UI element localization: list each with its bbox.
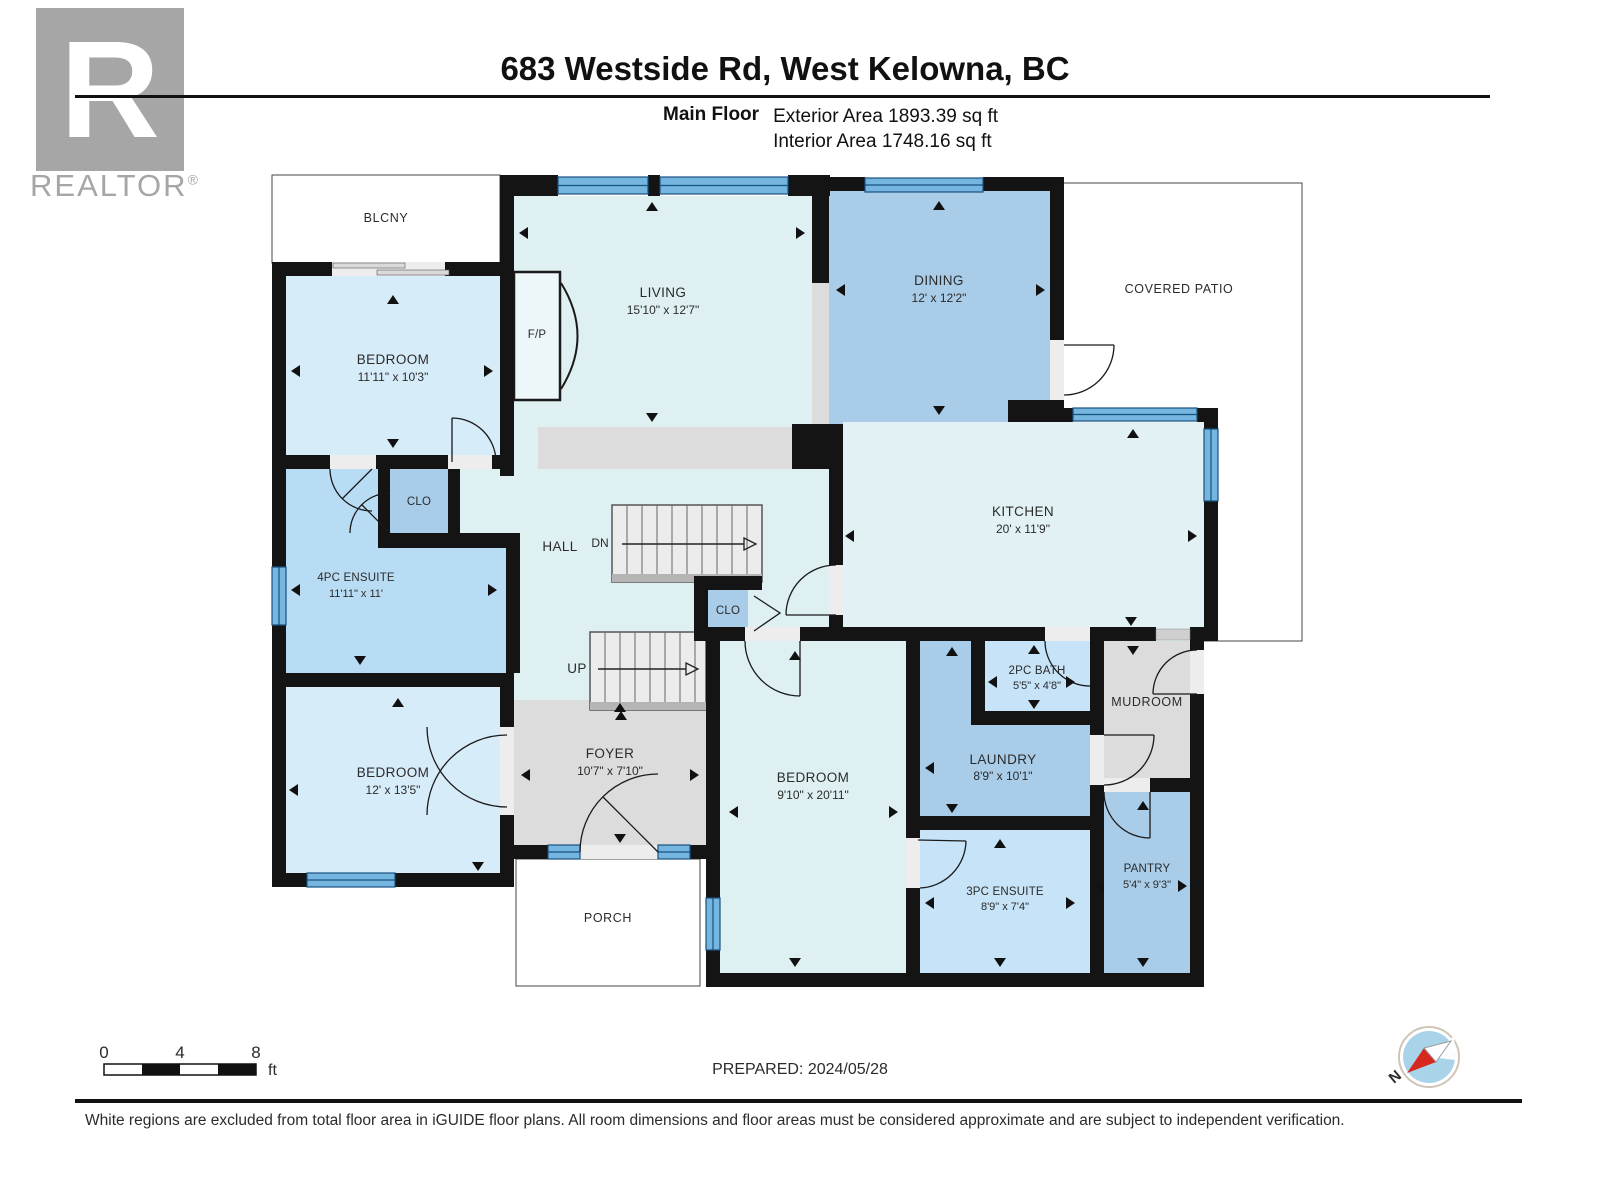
label-living: LIVING — [640, 285, 687, 300]
label-covered-patio: COVERED PATIO — [1125, 282, 1234, 296]
label-bath2: 2PC BATH — [1009, 665, 1066, 677]
dims-pantry: 5'4" x 9'3" — [1123, 879, 1171, 891]
label-fp: F/P — [528, 329, 547, 341]
floor-plan-page: R REALTOR® 683 Westside Rd, West Kelowna… — [0, 0, 1600, 1200]
scale-bar: 0 4 8 ft — [99, 1043, 277, 1079]
label-bedroom1: BEDROOM — [357, 352, 430, 367]
dims-dining: 12' x 12'2" — [912, 291, 967, 305]
label-up: UP — [567, 661, 587, 676]
label-ensuite3: 3PC ENSUITE — [966, 886, 1044, 898]
room-dining-floor — [829, 191, 1050, 424]
dims-bedroom12: 12' x 13'5" — [366, 783, 421, 797]
prepared-date: PREPARED: 2024/05/28 — [712, 1061, 888, 1078]
label-bedroom12: BEDROOM — [357, 765, 430, 780]
room-ensuite4-floor-b — [286, 548, 506, 673]
label-kitchen: KITCHEN — [992, 504, 1054, 519]
label-foyer: FOYER — [586, 746, 635, 761]
dims-bath2: 5'5" x 4'8" — [1013, 680, 1061, 692]
label-dining: DINING — [914, 273, 964, 288]
dims-bedroom1: 11'11" x 10'3" — [358, 370, 429, 384]
label-clo1: CLO — [407, 496, 431, 508]
scale-4: 4 — [175, 1043, 184, 1062]
compass-icon: N — [1386, 1027, 1459, 1087]
disclaimer-text: White regions are excluded from total fl… — [85, 1112, 1345, 1129]
floor-plan-svg: BLCNY BEDROOM 11'11" x 10'3" LIVING 15'1… — [0, 0, 1600, 1200]
dims-ensuite3: 8'9" x 7'4" — [981, 901, 1029, 913]
label-bedroom2: BEDROOM — [777, 770, 850, 785]
dims-kitchen: 20' x 11'9" — [996, 522, 1050, 536]
scale-8: 8 — [251, 1043, 260, 1062]
dims-foyer: 10'7" x 7'10" — [577, 764, 643, 778]
label-porch: PORCH — [584, 911, 632, 925]
label-ensuite4: 4PC ENSUITE — [317, 572, 395, 584]
scale-unit: ft — [268, 1062, 277, 1079]
dims-bedroom2: 9'10" x 20'11" — [777, 788, 849, 802]
dims-ensuite4: 11'11" x 11' — [329, 588, 383, 600]
stairs-up — [590, 632, 706, 710]
label-hall: HALL — [542, 539, 577, 554]
label-pantry: PANTRY — [1124, 863, 1171, 875]
room-bedroom12-floor — [286, 687, 500, 873]
label-clo2: CLO — [716, 605, 740, 617]
room-mudroom-floor — [1104, 641, 1190, 778]
room-bedroom2-floor — [720, 641, 906, 973]
scale-0: 0 — [99, 1043, 108, 1062]
label-mudroom: MUDROOM — [1111, 695, 1183, 709]
dims-living: 15'10" x 12'7" — [627, 303, 700, 317]
label-blcny: BLCNY — [364, 211, 409, 225]
mudroom-step — [1156, 629, 1190, 640]
label-dn: DN — [591, 536, 608, 550]
hall-strip — [538, 427, 792, 469]
dims-laundry: 8'9" x 10'1" — [973, 769, 1032, 783]
stairs-down — [612, 505, 762, 582]
label-laundry: LAUNDRY — [969, 752, 1036, 767]
